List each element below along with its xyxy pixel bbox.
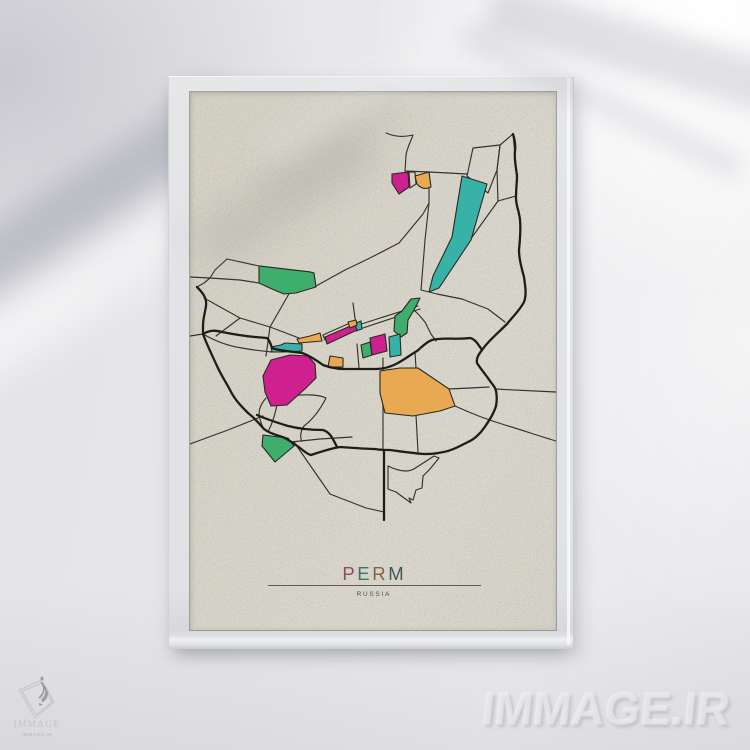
svg-text:IMMAGE: IMMAGE	[14, 720, 61, 730]
svg-text:IMMAGE.IR: IMMAGE.IR	[22, 732, 52, 738]
